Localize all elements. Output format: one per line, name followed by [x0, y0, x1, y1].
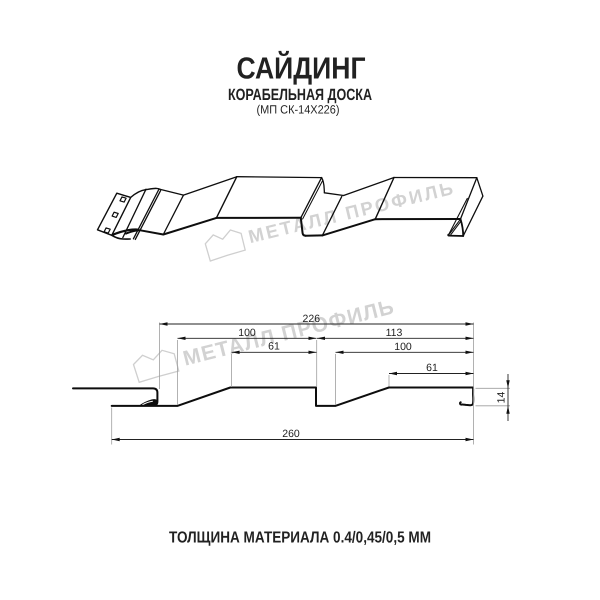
svg-text:КОРАБЕЛЬНАЯ ДОСКА: КОРАБЕЛЬНАЯ ДОСКА [228, 86, 372, 104]
svg-text:ТОЛЩИНА МАТЕРИАЛА 0.4/0,45/0,5: ТОЛЩИНА МАТЕРИАЛА 0.4/0,45/0,5 ММ [169, 530, 431, 547]
svg-text:61: 61 [268, 340, 280, 352]
svg-text:226: 226 [303, 313, 321, 325]
svg-text:113: 113 [386, 327, 403, 339]
svg-text:100: 100 [394, 341, 412, 353]
svg-text:61: 61 [426, 362, 438, 374]
svg-text:100: 100 [238, 327, 256, 339]
svg-text:САЙДИНГ: САЙДИНГ [237, 51, 366, 86]
svg-text:14: 14 [496, 392, 508, 404]
svg-text:(МП СК-14Х226): (МП СК-14Х226) [257, 103, 340, 117]
svg-text:260: 260 [282, 428, 300, 440]
